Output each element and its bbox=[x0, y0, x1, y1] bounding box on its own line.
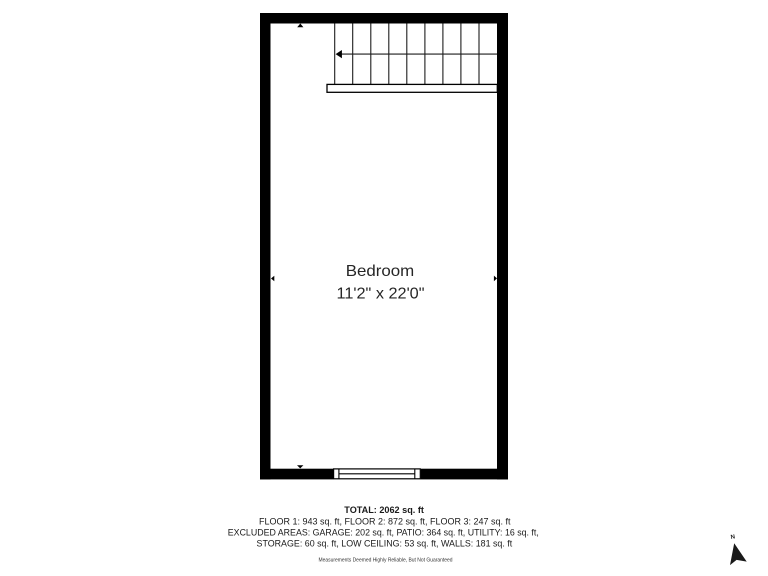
svg-text:EXCLUDED AREAS: GARAGE: 202 sq: EXCLUDED AREAS: GARAGE: 202 sq. ft, PATI… bbox=[228, 528, 539, 538]
svg-text:TOTAL: 2062 sq. ft: TOTAL: 2062 sq. ft bbox=[344, 505, 424, 515]
svg-text:Bedroom: Bedroom bbox=[346, 263, 415, 280]
svg-text:STORAGE: 60 sq. ft, LOW CEILIN: STORAGE: 60 sq. ft, LOW CEILING: 53 sq. … bbox=[257, 539, 513, 549]
svg-text:Measurements Deemed Highly Rel: Measurements Deemed Highly Reliable, But… bbox=[319, 558, 453, 564]
svg-text:FLOOR 1: 943 sq. ft, FLOOR 2:: FLOOR 1: 943 sq. ft, FLOOR 2: 872 sq. ft… bbox=[259, 516, 511, 526]
svg-text:11'2" x 22'0": 11'2" x 22'0" bbox=[337, 286, 425, 303]
